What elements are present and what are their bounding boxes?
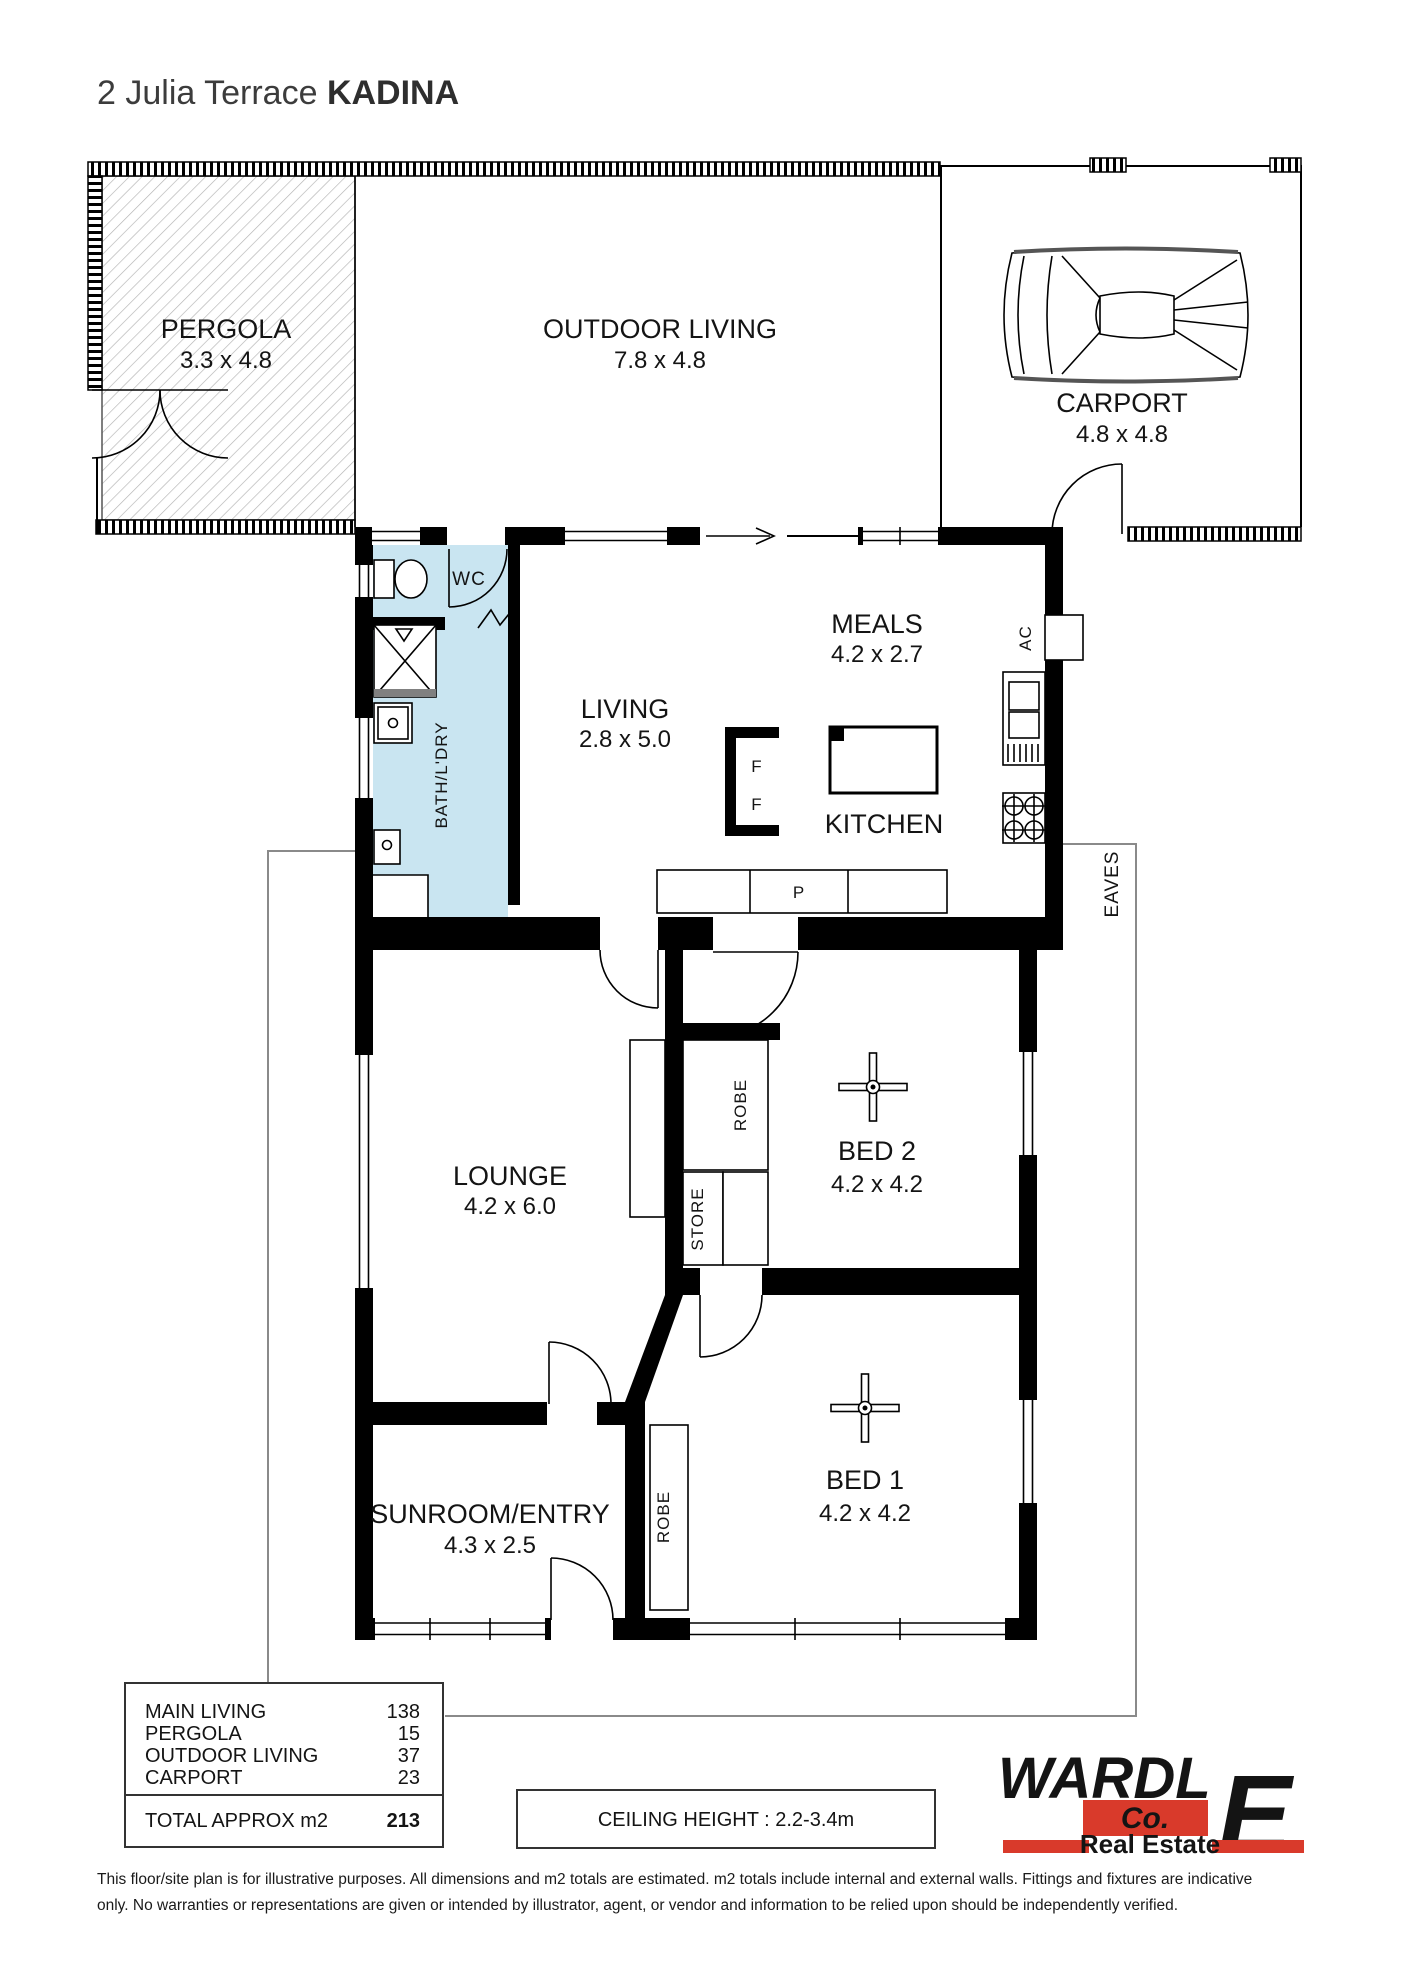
lounge-alcove (630, 1040, 665, 1217)
bed1-robe-label: ROBE (654, 1491, 673, 1543)
meals-dims: 4.2 x 2.7 (831, 641, 923, 668)
pergola-area: PERGOLA 3.3 x 4.8 (88, 162, 940, 534)
pergola-label: PERGOLA (161, 314, 292, 344)
sunroom-dims: 4.3 x 2.5 (444, 1532, 536, 1559)
logo-bar-left (1003, 1840, 1089, 1853)
carport-door (1052, 464, 1122, 534)
carport-bottom-screen-wall (1128, 527, 1301, 541)
bed2-robe-box (683, 1040, 768, 1170)
bed2-zone: BED 2 4.2 x 4.2 (831, 1053, 923, 1198)
floorplan-canvas: 2 Julia Terrace KADINA PERGOLA 3.3 x 4.8… (0, 0, 1403, 1984)
bed1-zone: ROBE BED 1 4.2 x 4.2 (650, 1374, 911, 1610)
pergola-outdoor-top-screen-wall (88, 162, 940, 176)
shower-icon (374, 625, 436, 697)
table-row-value: 138 (387, 1701, 420, 1723)
bed1-label: BED 1 (826, 1465, 904, 1495)
entry-arrow-icon (706, 528, 774, 544)
pantry-cupboards: P (657, 870, 947, 913)
sunroom-window (375, 1618, 545, 1640)
table-row-value: 23 (398, 1767, 420, 1789)
logo-bar-right (1212, 1840, 1304, 1853)
bed1-door (700, 1295, 762, 1357)
kitchen-zone: LIVING 2.8 x 5.0 MEALS 4.2 x 2.7 KITCHEN… (579, 609, 1083, 913)
laundry-tub-icon (374, 830, 400, 864)
storage-column: ROBE STORE (683, 1040, 768, 1265)
fridge-label-bottom: F (751, 795, 762, 814)
outdoor-living-dims: 7.8 x 4.8 (614, 347, 706, 374)
ceiling-height-note: CEILING HEIGHT : 2.2-3.4m (517, 1790, 935, 1848)
carport-label: CARPORT (1056, 388, 1188, 418)
kitchen-sink-bench (1003, 672, 1045, 765)
suburb-text: KADINA (327, 74, 459, 112)
sunroom-door (549, 1342, 611, 1404)
carport-area: CARPORT 4.8 x 4.8 (941, 158, 1301, 541)
meals-label: MEALS (831, 609, 923, 639)
table-total-value: 213 (387, 1810, 420, 1832)
store-label: STORE (688, 1187, 707, 1250)
disclaimer: This floor/site plan is for illustrative… (97, 1871, 1252, 1914)
table-row-value: 37 (398, 1745, 420, 1767)
bath-step-edge (373, 875, 428, 917)
toilet-icon (374, 560, 427, 598)
carport-dims: 4.8 x 4.8 (1076, 421, 1168, 448)
store-side-box (723, 1172, 768, 1265)
page-title: 2 Julia Terrace KADINA (97, 74, 459, 112)
bath-living-wall (508, 545, 520, 905)
agency-logo: WARDL E Co. Real Estate (998, 1746, 1304, 1876)
sunroom-exterior-door (551, 1558, 613, 1620)
pantry-label: P (793, 883, 805, 902)
eaves-label: EAVES (1102, 851, 1123, 918)
carport-top-screen-segment-2 (1270, 158, 1301, 172)
disclaimer-line2: only. No warranties or representations a… (97, 1897, 1178, 1914)
bed1-dims: 4.2 x 4.2 (819, 1500, 911, 1527)
wc-label: WC (452, 569, 486, 590)
table-row-label: CARPORT (145, 1767, 242, 1789)
bed2-label: BED 2 (838, 1136, 916, 1166)
fridge-nook: F F (725, 727, 779, 836)
address-text: 2 Julia Terrace (97, 74, 327, 112)
bed2-window (1019, 1047, 1037, 1160)
disclaimer-line1: This floor/site plan is for illustrative… (97, 1871, 1252, 1888)
table-row-label: PERGOLA (145, 1723, 242, 1745)
sunroom-zone: SUNROOM/ENTRY 4.3 x 2.5 (370, 1499, 610, 1559)
table-row-label: MAIN LIVING (145, 1701, 266, 1723)
lounge-door (600, 950, 658, 1008)
table-total-label: TOTAL APPROX m2 (145, 1810, 328, 1832)
eaves-line-left (268, 851, 355, 1683)
living-label: LIVING (581, 694, 670, 724)
outdoor-living-area: OUTDOOR LIVING 7.8 x 4.8 (355, 176, 777, 527)
living-dims: 2.8 x 5.0 (579, 726, 671, 753)
pergola-dims: 3.3 x 4.8 (180, 347, 272, 374)
ceiling-fan-bed2 (839, 1053, 907, 1121)
wc-side-window (355, 560, 373, 602)
living-window (560, 527, 672, 545)
lounge-label: LOUNGE (453, 1161, 567, 1191)
ac-unit: AC (1016, 615, 1083, 660)
bed1-window (1019, 1395, 1037, 1508)
sunroom-label: SUNROOM/ENTRY (370, 1499, 610, 1529)
bath-window (355, 713, 373, 803)
stove-icon (1002, 793, 1046, 843)
ceiling-fan-bed1 (831, 1374, 899, 1442)
lounge-dims: 4.2 x 6.0 (464, 1193, 556, 1220)
ceiling-note-text: CEILING HEIGHT : 2.2-3.4m (598, 1809, 854, 1831)
bath-laundry-label: BATH/L'DRY (432, 721, 451, 828)
fridge-label-top: F (751, 757, 762, 776)
carport-top-screen-segment-1 (1090, 158, 1126, 172)
kitchen-label: KITCHEN (825, 809, 944, 839)
bath-laundry-zone: WC BATH/L'DRY (373, 545, 520, 917)
lounge-window (355, 1050, 373, 1293)
table-row-value: 15 (398, 1723, 420, 1745)
logo-tagline: Real Estate (1080, 1829, 1220, 1859)
table-row-label: OUTDOOR LIVING (145, 1745, 318, 1767)
bed1-bottom-window (690, 1618, 1005, 1640)
vanity-sink-icon (374, 703, 412, 743)
car-icon (1004, 249, 1248, 382)
lounge-zone: LOUNGE 4.2 x 6.0 (453, 1040, 665, 1220)
pergola-bottom-screen-wall (96, 520, 355, 534)
pergola-left-screen-wall (88, 176, 102, 390)
area-table: MAIN LIVING 138 PERGOLA 15 OUTDOOR LIVIN… (125, 1683, 443, 1847)
floorplan-page: 2 Julia Terrace KADINA PERGOLA 3.3 x 4.8… (0, 0, 1403, 1984)
bed2-robe-label: ROBE (731, 1079, 750, 1131)
logo-word-e: E (1218, 1753, 1295, 1876)
meals-window (858, 527, 938, 545)
outdoor-living-label: OUTDOOR LIVING (543, 314, 777, 344)
bed2-dims: 4.2 x 4.2 (831, 1171, 923, 1198)
ac-label: AC (1016, 625, 1035, 651)
kitchen-island (830, 727, 937, 793)
wc-window (367, 527, 425, 545)
